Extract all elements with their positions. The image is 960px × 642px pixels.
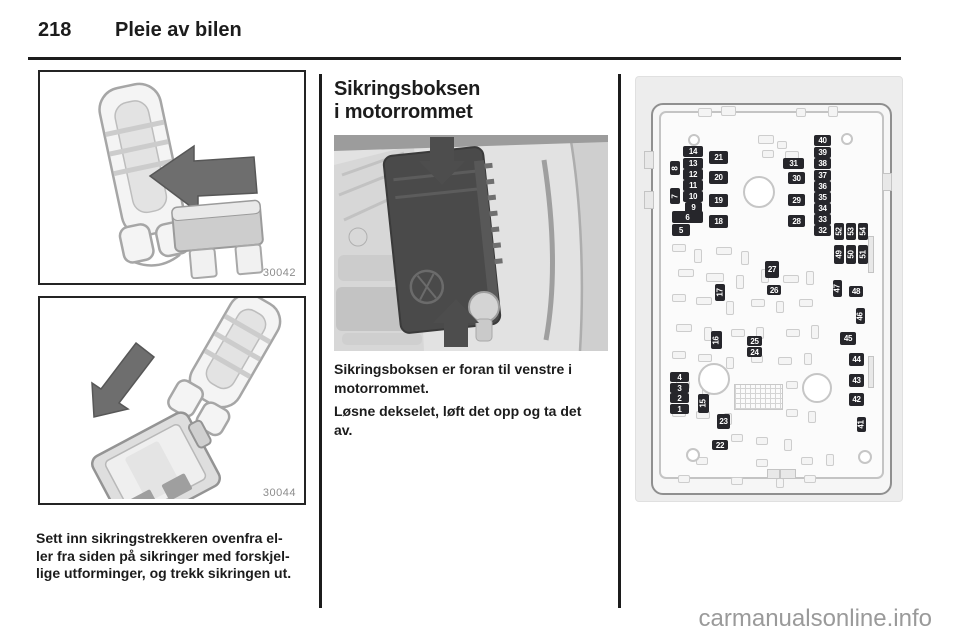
relay-slot	[736, 275, 744, 289]
figure-fuse-puller-flat-fuse: 30042	[38, 70, 306, 285]
column-divider-right	[618, 74, 621, 608]
fuse-16: 16	[711, 331, 722, 349]
caption-line: ler fra siden på sikringer med forskjel-	[36, 548, 312, 566]
fuse-36: 36	[814, 181, 831, 192]
relay-slot	[758, 135, 774, 144]
header-rule	[28, 57, 901, 60]
relay-slot	[721, 106, 736, 116]
fuse-20: 20	[709, 171, 728, 184]
fuse-8: 8	[670, 161, 680, 175]
fuse-41: 41	[857, 417, 866, 432]
relay-slot	[696, 297, 712, 305]
section-heading-line: i motorrommet	[334, 101, 480, 124]
relay-slot	[672, 294, 686, 302]
relay-slot	[778, 357, 792, 365]
relay-slot	[762, 150, 774, 158]
label-grid	[734, 384, 783, 410]
fuse-29: 29	[788, 194, 805, 206]
relay-slot	[731, 329, 745, 337]
relay-slot	[731, 434, 743, 442]
fuse-17: 17	[715, 284, 725, 301]
relay-slot	[777, 141, 787, 149]
fuse-52: 52	[834, 223, 844, 240]
engine-compartment-photo	[334, 135, 608, 351]
fuse-4: 4	[670, 372, 689, 382]
fuse-44: 44	[849, 353, 864, 366]
relay-slot	[786, 329, 800, 337]
fuse-18: 18	[709, 215, 728, 228]
relay-slot	[783, 275, 799, 283]
relay-slot	[756, 437, 768, 445]
instruction-paragraph: Løsne dekselet, løft det opp og ta det a…	[334, 402, 596, 440]
section-heading: Sikringsboksen i motorrommet	[334, 78, 480, 124]
relay-slot	[801, 457, 813, 465]
fuse-22: 22	[712, 440, 728, 450]
relay-slot	[698, 108, 712, 117]
relay-slot	[828, 106, 838, 117]
fuse-23: 23	[717, 414, 730, 429]
relay-slot	[786, 409, 798, 417]
fuse-10: 10	[683, 191, 703, 202]
caption-line: lige utforminger, og trekk sikringen ut.	[36, 565, 312, 583]
fuse-6: 6	[672, 211, 703, 223]
relay-slot	[804, 475, 816, 483]
relay-slot	[756, 459, 768, 467]
chapter-title: Pleie av bilen	[115, 19, 242, 42]
fuse-38: 38	[814, 158, 831, 169]
fuse-3: 3	[670, 383, 689, 393]
fuse-40: 40	[814, 135, 831, 146]
relay-slot	[731, 477, 743, 485]
mounting-hole	[802, 373, 832, 403]
relay-slot	[804, 353, 812, 365]
fuse-12: 12	[683, 169, 703, 180]
fuse-19: 19	[709, 194, 728, 207]
fuse-39: 39	[814, 147, 831, 158]
fuse-42: 42	[849, 393, 864, 406]
fuse-48: 48	[849, 286, 863, 297]
panel-notch	[882, 173, 892, 191]
relay-slot	[726, 301, 734, 315]
flat-blade-fuse	[172, 200, 266, 279]
mounting-hole	[698, 363, 730, 395]
relay-slot	[776, 301, 784, 313]
fuse-54: 54	[858, 223, 868, 240]
relay-slot	[826, 454, 834, 466]
fuse-box-diagram: 1413121110965872120191831302928403938373…	[635, 76, 903, 502]
mounting-hole	[743, 176, 775, 208]
watermark: carmanualsonline.info	[699, 605, 932, 633]
panel-notch	[868, 236, 874, 273]
arrow-down-left-icon	[92, 343, 154, 417]
relay-slot	[786, 381, 798, 389]
relay-slot	[672, 244, 686, 252]
relay-slot	[698, 354, 712, 362]
fuse-37: 37	[814, 170, 831, 181]
fuse-layer: 1413121110965872120191831302928403938373…	[636, 77, 902, 501]
figure1-id: 30042	[263, 267, 296, 279]
relay-slot	[806, 271, 814, 285]
fuse-30: 30	[788, 172, 805, 184]
left-caption: Sett inn sikringstrekkeren ovenfra el- l…	[36, 530, 312, 583]
fuse-puller-illustration	[40, 72, 300, 279]
mounting-hole	[688, 134, 700, 146]
fuse-24: 24	[747, 347, 762, 357]
fuse-31: 31	[783, 158, 804, 169]
fuse-27: 27	[765, 261, 779, 278]
mounting-hole	[841, 133, 853, 145]
relay-slot	[726, 357, 734, 369]
relay-slot	[751, 299, 765, 307]
fuse-49: 49	[834, 245, 844, 264]
fuse-13: 13	[683, 158, 703, 169]
fuse-35: 35	[814, 192, 831, 203]
relay-slot	[678, 475, 690, 483]
page-number: 218	[38, 19, 71, 42]
fuse-14: 14	[683, 146, 703, 157]
relay-slot	[676, 324, 692, 332]
fuse-holder-illustration	[40, 298, 300, 499]
fuse-21: 21	[709, 151, 728, 164]
panel-notch	[767, 469, 780, 479]
fuse-43: 43	[849, 374, 864, 387]
fuse-1: 1	[670, 404, 689, 414]
panel-notch	[644, 151, 654, 169]
panel-notch	[644, 191, 654, 209]
fuse-34: 34	[814, 203, 831, 214]
relay-slot	[808, 411, 816, 423]
relay-slot	[694, 249, 702, 263]
fuse-53: 53	[846, 223, 856, 240]
fuse-32: 32	[814, 225, 831, 236]
fuse-28: 28	[788, 215, 805, 227]
relay-slot	[706, 273, 724, 282]
fuse-46: 46	[856, 308, 865, 324]
relay-slot	[672, 351, 686, 359]
fuse-11: 11	[683, 180, 703, 191]
fuse-15: 15	[698, 394, 709, 413]
fuse-2: 2	[670, 393, 689, 403]
relay-slot	[796, 108, 806, 117]
manual-page: 218 Pleie av bilen 30042	[0, 0, 960, 642]
column-divider-left	[319, 74, 322, 608]
fuse-33: 33	[814, 214, 831, 225]
relay-slot	[741, 251, 749, 265]
figure2-id: 30044	[263, 487, 296, 499]
fuse-47: 47	[833, 280, 842, 297]
relay-slot	[678, 269, 694, 277]
relay-slot	[716, 247, 732, 255]
fuse-26: 26	[767, 285, 781, 295]
engine-compartment-illustration	[334, 135, 608, 351]
caption-line: Sett inn sikringstrekkeren ovenfra el-	[36, 530, 312, 548]
relay-slot	[784, 439, 792, 451]
fuse-51: 51	[858, 245, 868, 264]
relay-slot	[776, 478, 784, 488]
relay-slot	[799, 299, 813, 307]
fuse-25: 25	[747, 336, 762, 346]
fuse-5: 5	[672, 224, 690, 236]
panel-notch	[780, 469, 796, 479]
fuse-45: 45	[840, 332, 856, 345]
mounting-hole	[686, 448, 700, 462]
location-paragraph: Sikringsboksen er foran til venstre i mo…	[334, 360, 596, 398]
relay-slot	[811, 325, 819, 339]
fuse-7: 7	[670, 188, 680, 204]
figure-fuse-puller-holder: 30044	[38, 296, 306, 505]
section-heading-line: Sikringsboksen	[334, 78, 480, 101]
mounting-hole	[858, 450, 872, 464]
fuse-50: 50	[846, 245, 856, 264]
panel-notch	[868, 356, 874, 388]
